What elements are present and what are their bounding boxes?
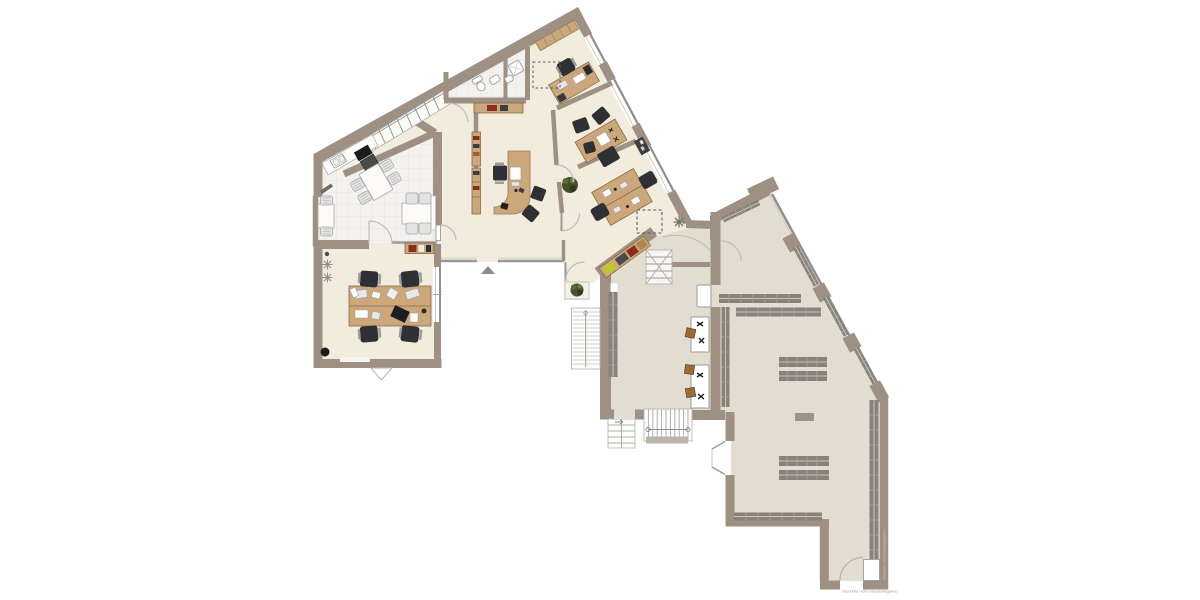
svg-text:Grundriss nicht massstabsgetre: Grundriss nicht massstabsgetreu <box>883 529 887 580</box>
svg-text:Grundriss nicht massstabsgetre: Grundriss nicht massstabsgetreu <box>842 590 898 594</box>
